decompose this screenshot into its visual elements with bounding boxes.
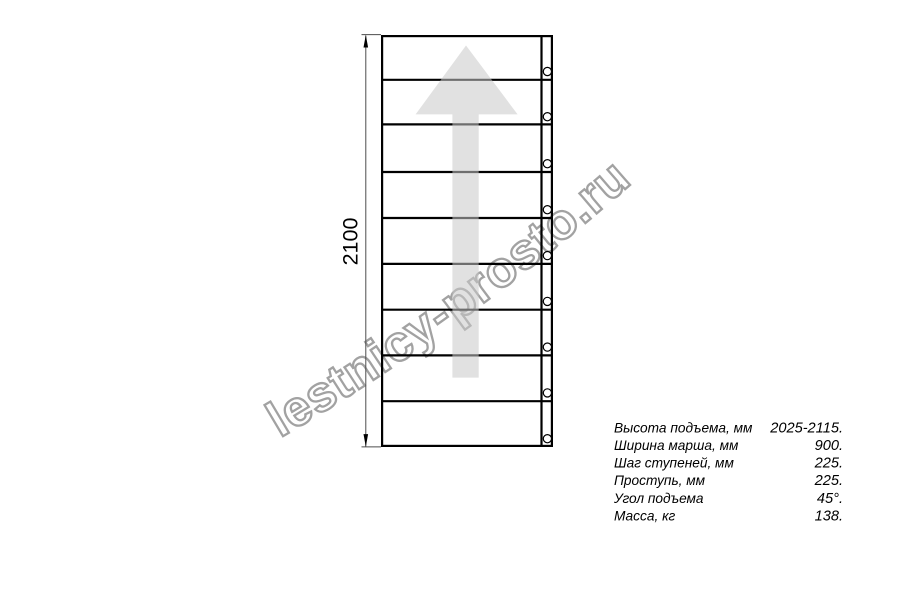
svg-text:Шаг ступеней, мм: Шаг ступеней, мм (614, 456, 734, 471)
svg-text:Ширина марша, мм: Ширина марша, мм (614, 438, 739, 453)
svg-text:Масса, кг: Масса, кг (614, 509, 676, 524)
svg-text:2025-2115.: 2025-2115. (769, 420, 843, 436)
svg-text:Угол подъема: Угол подъема (613, 491, 704, 506)
svg-text:45°.: 45°. (817, 491, 843, 507)
svg-text:900.: 900. (815, 438, 843, 454)
svg-text:Проступь, мм: Проступь, мм (614, 473, 706, 488)
svg-text:Высота подъема, мм: Высота подъема, мм (614, 420, 753, 435)
svg-text:225.: 225. (814, 473, 843, 489)
svg-text:225.: 225. (814, 456, 843, 472)
svg-text:138.: 138. (815, 509, 843, 525)
svg-text:2100: 2100 (339, 218, 363, 266)
